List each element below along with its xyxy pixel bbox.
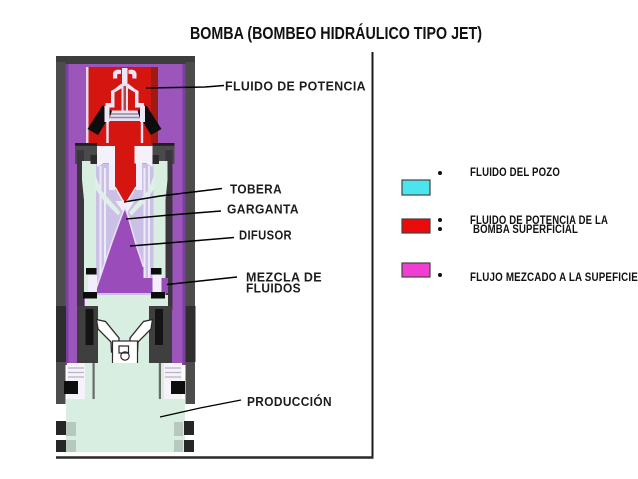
svg-text:PRODUCCIÓN: PRODUCCIÓN bbox=[247, 394, 332, 409]
svg-text:BOMBA SUPERFICIAL: BOMBA SUPERFICIAL bbox=[473, 224, 578, 236]
svg-text:TOBERA: TOBERA bbox=[230, 183, 282, 197]
svg-text:GARGANTA: GARGANTA bbox=[227, 203, 299, 217]
svg-text:FLUIDO DEL POZO: FLUIDO DEL POZO bbox=[470, 167, 560, 179]
svg-text:FLUIDOS: FLUIDOS bbox=[246, 282, 301, 296]
svg-text:DIFUSOR: DIFUSOR bbox=[239, 229, 292, 243]
svg-text:FLUJO MEZCADO A LA SUPEFICIE: FLUJO MEZCADO A LA SUPEFICIE bbox=[470, 272, 638, 284]
svg-text:FLUIDO DE POTENCIA: FLUIDO DE POTENCIA bbox=[225, 80, 366, 94]
svg-text:BOMBA (BOMBEO HIDRÁULICO TIPO: BOMBA (BOMBEO HIDRÁULICO TIPO JET) bbox=[190, 22, 482, 43]
